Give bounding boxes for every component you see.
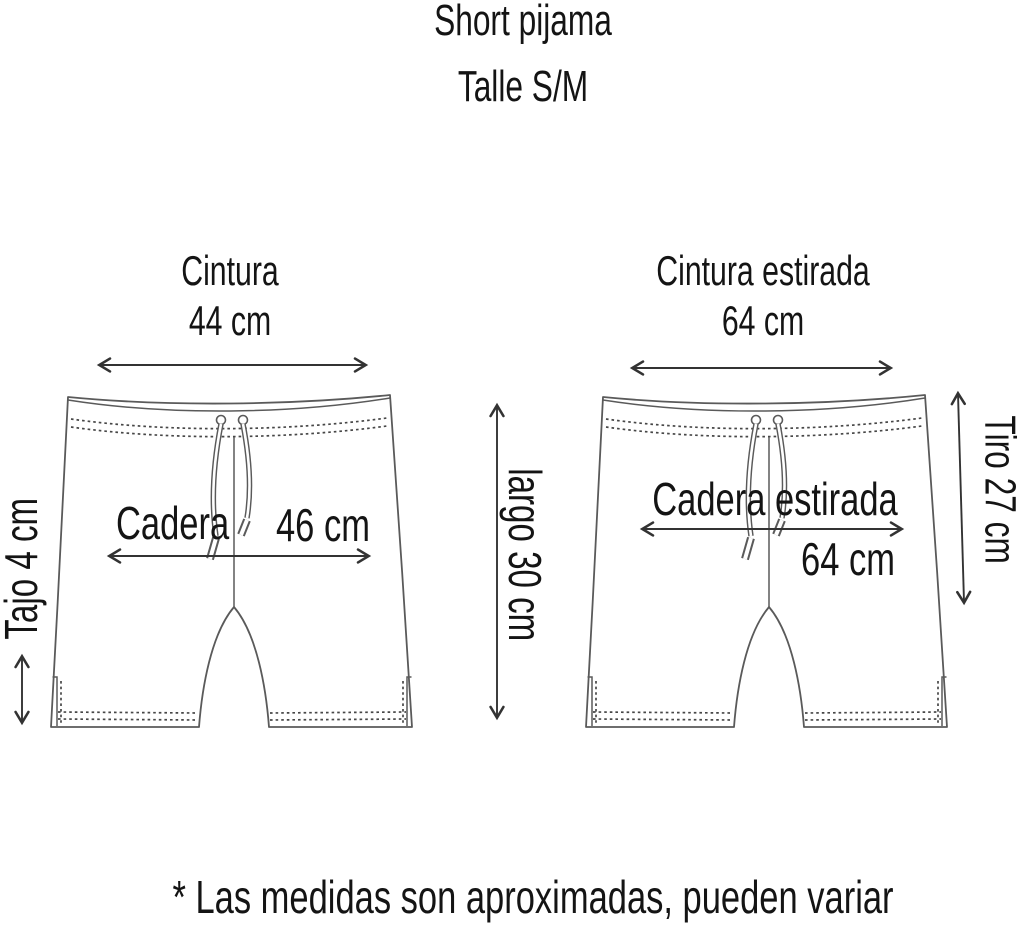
waist-label-right: Cintura estirada xyxy=(547,246,979,296)
hip-value-left: 46 cm xyxy=(276,500,370,552)
page-title: Short pijama xyxy=(307,0,739,45)
waist-label-group-left: Cintura 44 cm xyxy=(14,246,446,346)
size-chart: Short pijama Talle S/M Cintura 44 cm Cin… xyxy=(0,0,1024,926)
waist-label-left: Cintura xyxy=(14,246,446,296)
hip-label-right: Cadera estirada xyxy=(550,474,1000,526)
waist-value-left: 44 cm xyxy=(14,296,446,346)
waist-value-right: 64 cm xyxy=(547,296,979,346)
left-shorts-drawing xyxy=(51,395,412,727)
rise-label: Tiro 27 cm xyxy=(975,274,1024,706)
length-label: largo 30 cm xyxy=(498,339,550,771)
waist-label-group-right: Cintura estirada 64 cm xyxy=(547,246,979,346)
hip-value-right: 64 cm xyxy=(623,534,1024,586)
size-label: Talle S/M xyxy=(307,62,739,111)
slit-label: Tajo 4 cm xyxy=(0,353,48,785)
footnote: * Las medidas son aproximadas, pueden va… xyxy=(158,872,908,924)
hip-label-left: Cadera xyxy=(116,498,229,550)
